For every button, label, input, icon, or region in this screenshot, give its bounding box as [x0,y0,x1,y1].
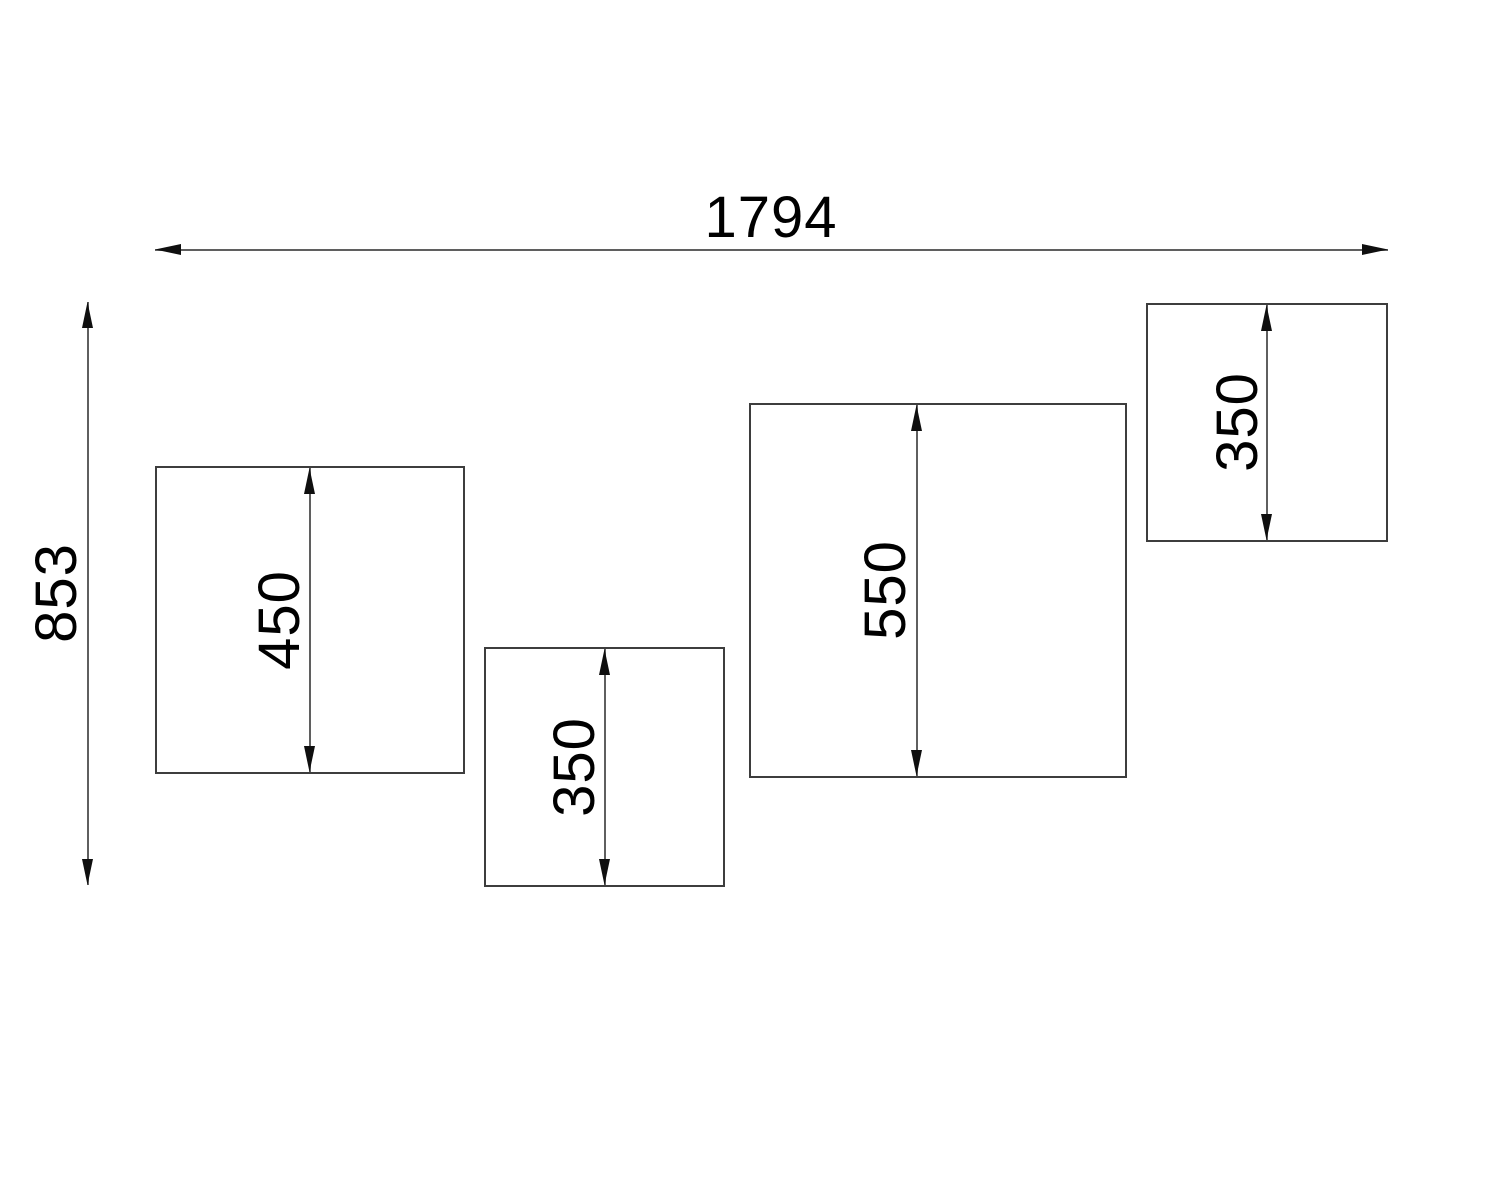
arrowhead-up-icon [82,302,93,328]
panel-3-height-label: 550 [860,440,912,740]
panel-2-height-label: 350 [549,617,601,917]
panel-box-3 [749,403,1127,778]
technical-drawing-canvas: 1794 853 450 350 550 350 [0,0,1500,1200]
overall-width-label: 1794 [571,192,971,244]
panel-1-height-label: 450 [254,470,306,770]
panel-4-height-label: 350 [1212,272,1264,572]
arrowhead-left-icon [155,244,181,255]
arrowhead-down-icon [82,859,93,885]
overall-height-label: 853 [31,443,83,743]
arrowhead-right-icon [1362,244,1388,255]
